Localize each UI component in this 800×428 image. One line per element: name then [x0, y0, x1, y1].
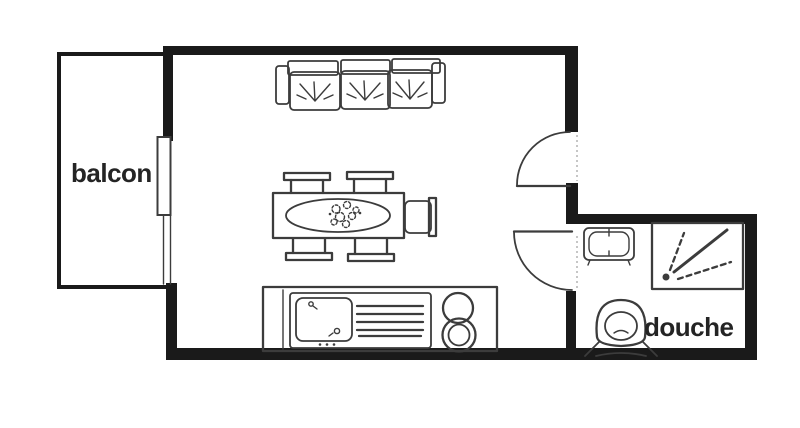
drainboard-icon [357, 306, 423, 336]
balcony-sliding-door-icon [158, 137, 171, 284]
shower-icon [652, 223, 743, 289]
dining-table-icon [273, 193, 404, 238]
kitchen-counter-icon [263, 287, 497, 352]
entrance-door-icon [517, 132, 577, 186]
bathroom-door-icon [514, 232, 577, 291]
sofa-icon [276, 59, 445, 110]
floor-plan: balcon douche [0, 0, 800, 428]
kitchen-sink-icon [296, 298, 352, 346]
floorplan-symbols [0, 0, 800, 428]
balcony-label: balcon [71, 160, 152, 186]
dining-chairs-icon [284, 172, 436, 261]
shower-room-label: douche [644, 314, 733, 340]
washbasin-icon [584, 228, 634, 265]
stove-burners-icon [443, 293, 476, 352]
